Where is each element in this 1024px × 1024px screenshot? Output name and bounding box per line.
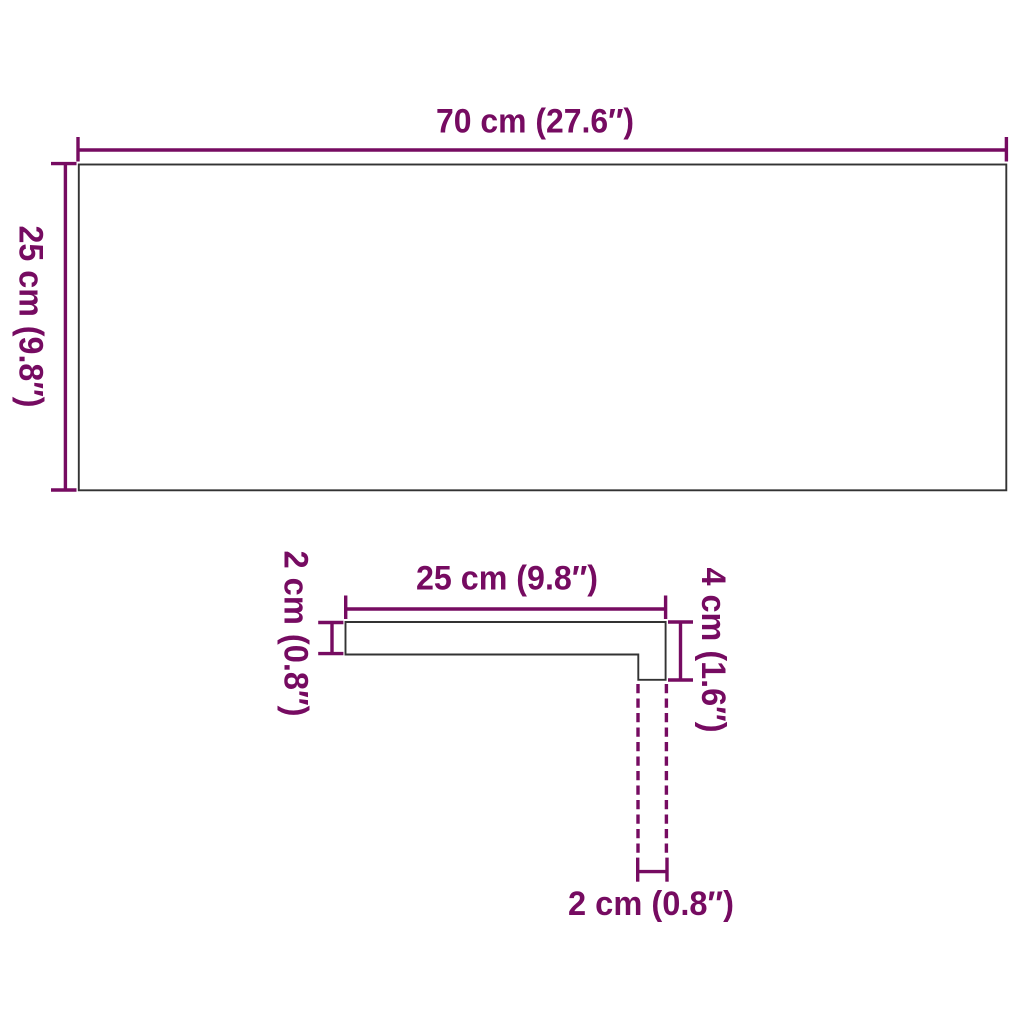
svg-text:25 cm (9.8″): 25 cm (9.8″)	[12, 226, 50, 408]
svg-text:2 cm (0.8″): 2 cm (0.8″)	[277, 551, 315, 717]
svg-text:70 cm (27.6″): 70 cm (27.6″)	[436, 103, 634, 141]
svg-text:2 cm (0.8″): 2 cm (0.8″)	[568, 885, 734, 923]
svg-text:4 cm (1.6″): 4 cm (1.6″)	[694, 568, 732, 733]
svg-text:25 cm (9.8″): 25 cm (9.8″)	[416, 560, 598, 598]
